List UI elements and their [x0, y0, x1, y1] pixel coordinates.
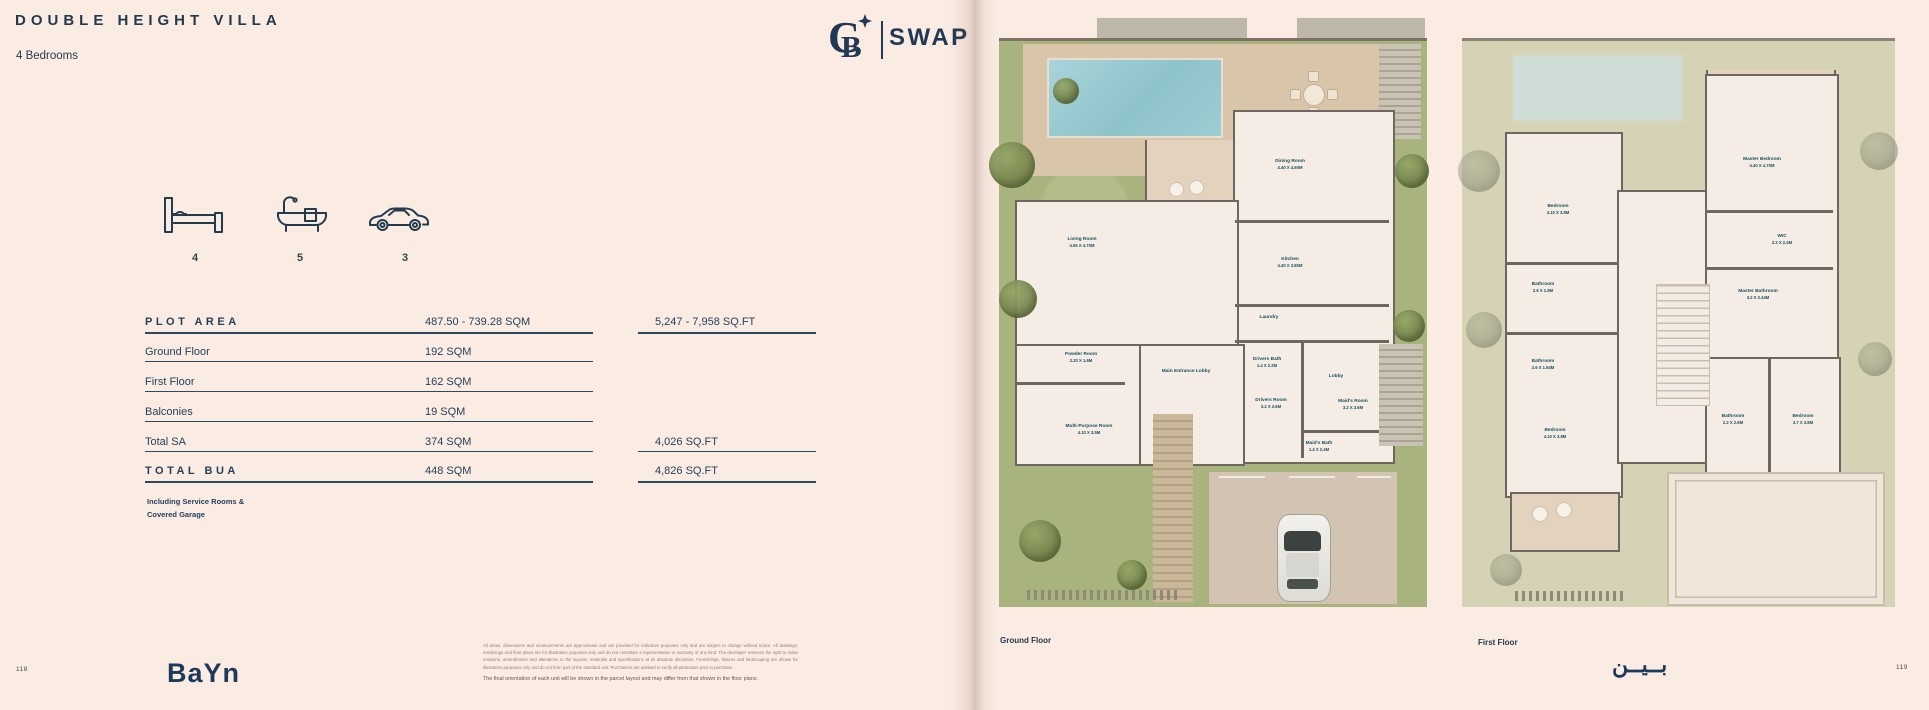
- ground-floor-plan: Dining Room4.40 X 4.60M Living Room4.55 …: [997, 14, 1429, 614]
- room-label: Laundry: [1260, 315, 1279, 321]
- tree: [1860, 132, 1898, 170]
- first-floor-label: First Floor: [1478, 638, 1518, 647]
- table-rule: [145, 391, 593, 392]
- room-label: Bedroom3.7 X 3.8M: [1792, 414, 1813, 426]
- room-label: WIC2.2 X 2.4M: [1772, 234, 1792, 246]
- tree: [1466, 312, 1502, 348]
- driveway-marking: [1289, 476, 1335, 478]
- table-row-sqm: 162 SQM: [425, 376, 471, 388]
- table-rule: [638, 451, 816, 452]
- bed-icon: [162, 196, 226, 234]
- room-label: Drivers Room3.2 X 3.6M: [1255, 398, 1286, 410]
- table-row-sqm: 192 SQM: [425, 346, 471, 358]
- room-label: Kitchen4.40 X 3.80M: [1278, 257, 1303, 269]
- table-row-sqm: 19 SQM: [425, 406, 465, 418]
- patio-seat: [1189, 180, 1204, 195]
- beds-count: 4: [185, 252, 205, 264]
- page-number-right: 119: [1896, 664, 1908, 671]
- outdoor-dining-table: [1303, 84, 1325, 106]
- sidewalk: [1097, 18, 1247, 38]
- table-row-label: Balconies: [145, 406, 193, 418]
- car-icon: [366, 202, 432, 232]
- car-windshield: [1284, 531, 1321, 551]
- boundary-hatch: [1515, 591, 1625, 601]
- outdoor-chair: [1308, 71, 1319, 82]
- page-fold-shadow: [950, 0, 998, 710]
- tree: [1458, 150, 1500, 192]
- driveway-marking: [1357, 476, 1391, 478]
- table-row-sqft: 5,247 - 7,958 SQ.FT: [655, 316, 755, 328]
- tree: [1019, 520, 1061, 562]
- bayn-arabic-logo: بــيــن: [1612, 652, 1667, 678]
- room-label: Bedroom4.10 X 3.8M: [1547, 204, 1570, 216]
- disclaimer-fine-print: All areas, dimensions and measurements a…: [483, 642, 798, 671]
- balcony: [1510, 492, 1620, 552]
- pool-below-faded: [1512, 54, 1684, 122]
- table-rule: [638, 332, 816, 334]
- tree: [1053, 78, 1079, 104]
- tree: [1395, 154, 1429, 188]
- room-label: Maid's Bath1.4 X 2.4M: [1306, 441, 1333, 453]
- room-label: Bathroom2.2 X 2.6M: [1722, 414, 1745, 426]
- interior-wall: [1707, 267, 1833, 270]
- table-row-label: Total SA: [145, 436, 186, 448]
- building-left-wing: [1505, 132, 1623, 498]
- tree: [1490, 554, 1522, 586]
- ground-floor-label: Ground Floor: [1000, 636, 1051, 645]
- bayn-logo: BaYn: [167, 658, 240, 689]
- table-row-sqft: 4,026 SQ.FT: [655, 436, 718, 448]
- room-label: Multi-Purpose Room4.10 X 3.5M: [1066, 424, 1113, 436]
- room-label: Drivers Bath1.4 X 2.2M: [1253, 357, 1282, 369]
- room-label: Bathroom2.6 X 1.9M: [1532, 282, 1555, 294]
- table-rule: [145, 451, 593, 452]
- star-icon: [858, 14, 872, 28]
- tree: [1858, 342, 1892, 376]
- garden-steps: [1153, 414, 1193, 602]
- room-label: Maid's Room3.2 X 3.6M: [1338, 399, 1368, 411]
- first-floor-plan: Master Bedroom4.40 X 4.70M Bedroom4.10 X…: [1460, 14, 1897, 614]
- outdoor-chair: [1290, 89, 1301, 100]
- room-label: Living Room4.55 X 4.70M: [1067, 237, 1096, 249]
- car-rear-window: [1287, 579, 1318, 589]
- room-label: Master Bathroom3.2 X 2.44M: [1738, 289, 1777, 301]
- interior-wall: [1235, 340, 1389, 343]
- interior-wall: [1707, 210, 1833, 213]
- page-number-left: 118: [16, 666, 28, 673]
- tree: [1117, 560, 1147, 590]
- side-steps: [1379, 344, 1423, 446]
- disclaimer-final-line: The final orientation of each unit will …: [483, 676, 813, 682]
- table-rule: [145, 332, 593, 334]
- table-row-label: Ground Floor: [145, 346, 210, 358]
- table-row-label: PLOT AREA: [145, 316, 240, 328]
- room-label: Bedroom4.10 X 3.8M: [1544, 428, 1567, 440]
- table-note-line1: Including Service Rooms &: [147, 497, 244, 506]
- sidewalk: [1297, 18, 1425, 38]
- cb-swap-logo: C B SWAP: [828, 14, 958, 64]
- interior-wall: [1505, 262, 1617, 265]
- svg-text:B: B: [841, 29, 862, 62]
- room-label: Main Entrance Lobby: [1162, 369, 1211, 375]
- staircase: [1656, 284, 1710, 406]
- building-master-suite: [1705, 74, 1839, 363]
- table-note-line2: Covered Garage: [147, 510, 205, 519]
- table-row-sqm: 374 SQM: [425, 436, 471, 448]
- building-right-wing: [1233, 110, 1395, 464]
- table-rule: [145, 361, 593, 362]
- table-row-sqm: 448 SQM: [425, 465, 471, 477]
- room-label: Dining Room4.40 X 4.60M: [1275, 159, 1305, 171]
- outdoor-chair: [1327, 89, 1338, 100]
- double-height-void: [1667, 472, 1885, 606]
- car-top-view: [1277, 514, 1331, 602]
- tree: [999, 280, 1037, 318]
- room-label: Bathroom2.6 X 1.94M: [1532, 359, 1555, 371]
- room-label: Powder Room2.20 X 1.6M: [1065, 352, 1097, 364]
- table-rule: [145, 421, 593, 422]
- interior-wall: [1301, 430, 1389, 433]
- tree: [989, 142, 1035, 188]
- interior-wall: [1505, 332, 1617, 335]
- car-roof: [1286, 553, 1319, 577]
- table-row-sqft: 4,826 SQ.FT: [655, 465, 718, 477]
- area-table: PLOT AREA 487.50 - 739.28 SQM 5,247 - 7,…: [145, 310, 817, 495]
- building-living-block: [1015, 200, 1239, 352]
- room-label: Lobby: [1329, 374, 1343, 380]
- table-row-label: First Floor: [145, 376, 195, 388]
- interior-wall: [1768, 359, 1771, 472]
- table-rule: [638, 481, 816, 483]
- driveway-marking: [1219, 476, 1265, 478]
- patio-seat: [1169, 182, 1184, 197]
- interior-wall: [1235, 304, 1389, 307]
- interior-wall: [1015, 382, 1125, 385]
- table-rule: [145, 481, 593, 483]
- table-row-label: TOTAL BUA: [145, 465, 239, 477]
- brochure-spread: DOUBLE HEIGHT VILLA 4 Bedrooms 4 5 3 PLO…: [0, 0, 1929, 710]
- interior-wall: [1235, 220, 1389, 223]
- balcony-seat: [1556, 502, 1572, 518]
- room-label: Master Bedroom4.40 X 4.70M: [1743, 157, 1781, 169]
- boundary-hatch: [1027, 590, 1177, 600]
- logo-divider: [881, 21, 883, 59]
- interior-wall: [1301, 340, 1304, 458]
- bathtub-icon: [272, 192, 332, 234]
- page-title: DOUBLE HEIGHT VILLA: [15, 12, 282, 29]
- balcony-seat: [1532, 506, 1548, 522]
- page-subtitle: 4 Bedrooms: [16, 50, 78, 62]
- tree: [1393, 310, 1425, 342]
- baths-count: 5: [290, 252, 310, 264]
- parking-count: 3: [395, 252, 415, 264]
- cb-monogram-icon: C B: [828, 14, 876, 62]
- table-row-sqm: 487.50 - 739.28 SQM: [425, 316, 530, 328]
